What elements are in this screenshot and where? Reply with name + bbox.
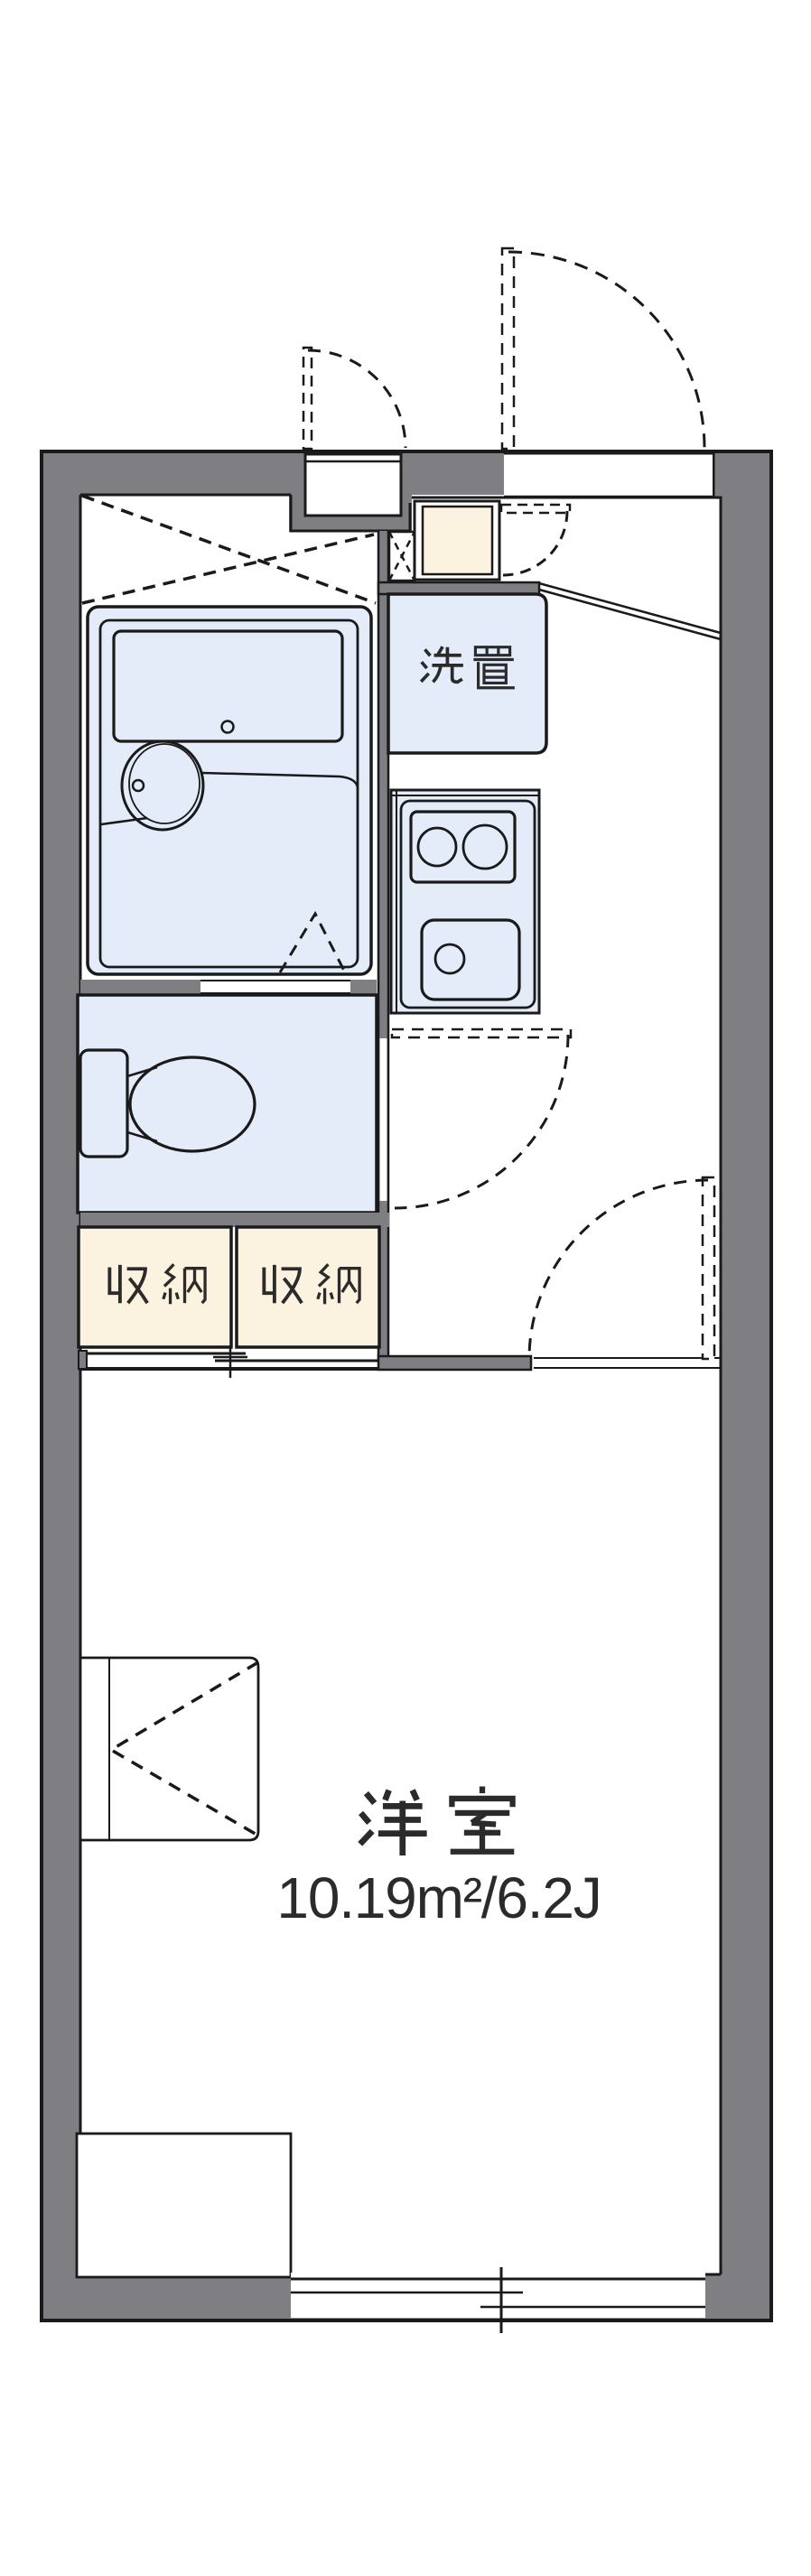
svg-text:10.19m²/6.2J: 10.19m²/6.2J bbox=[276, 1865, 601, 1930]
